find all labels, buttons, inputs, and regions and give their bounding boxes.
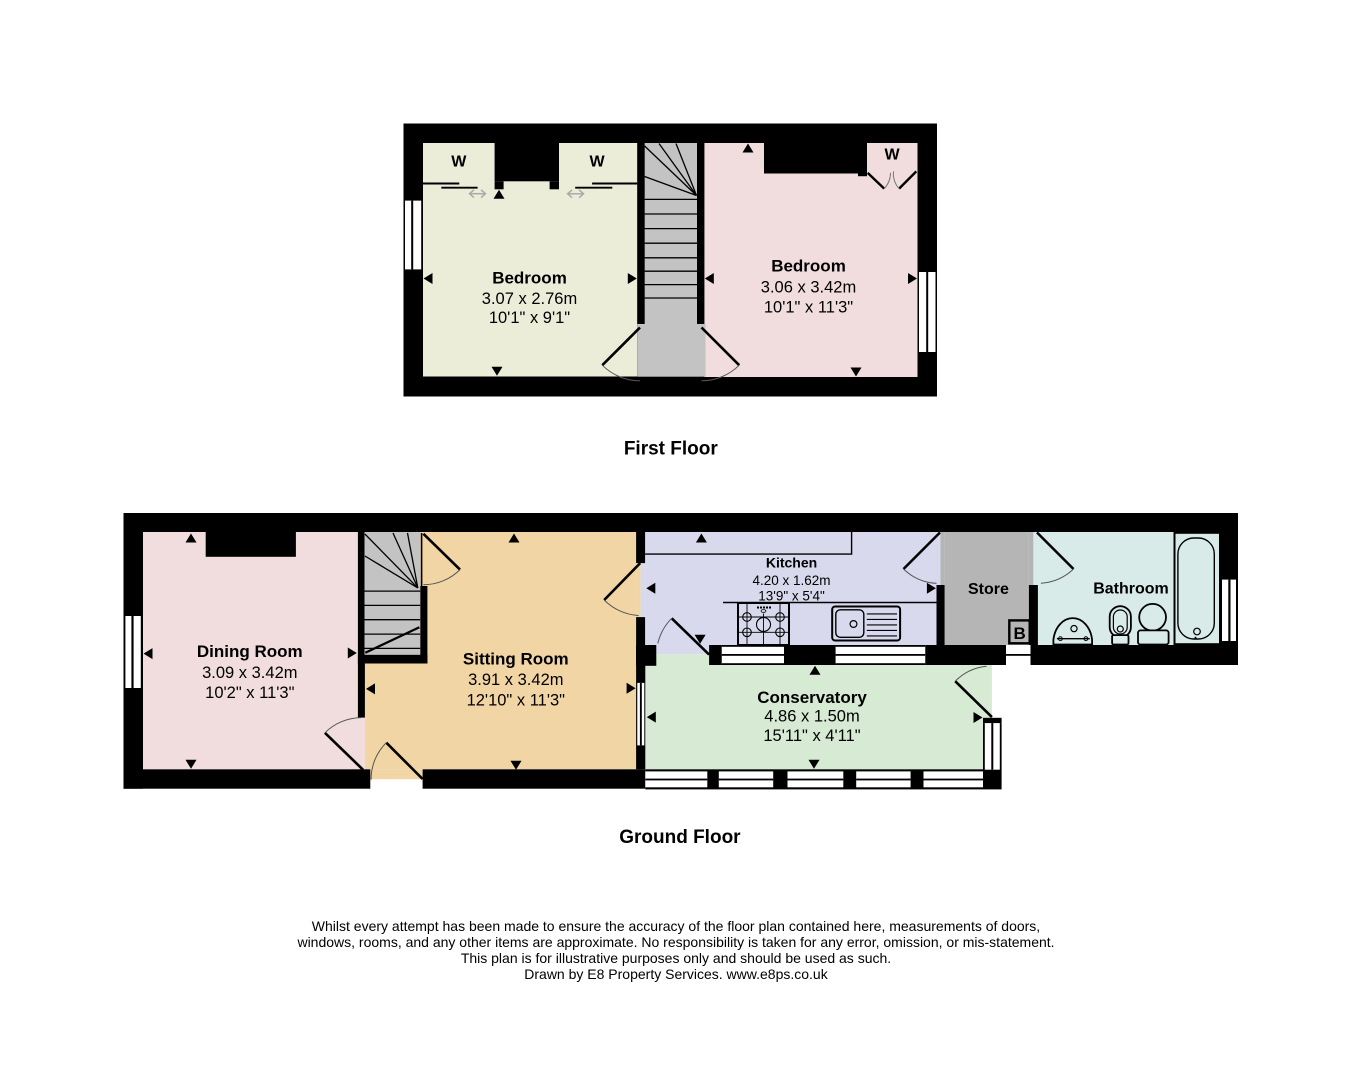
svg-text:W: W	[884, 147, 900, 164]
svg-text:3.09 x 3.42m: 3.09 x 3.42m	[202, 664, 297, 682]
svg-text:10'1" x 11'3": 10'1" x 11'3"	[764, 299, 853, 317]
svg-text:Whilst every attempt has been: Whilst every attempt has been made to en…	[312, 918, 1040, 934]
svg-text:This plan is for illustrative: This plan is for illustrative purposes o…	[461, 950, 891, 966]
svg-text:4.86 x 1.50m: 4.86 x 1.50m	[764, 707, 859, 725]
svg-text:Bedroom: Bedroom	[492, 269, 567, 288]
svg-text:Store: Store	[968, 581, 1009, 598]
svg-text:B: B	[1014, 624, 1026, 643]
svg-text:Ground Floor: Ground Floor	[619, 827, 741, 848]
svg-text:Bedroom: Bedroom	[771, 257, 846, 276]
svg-text:3.07 x 2.76m: 3.07 x 2.76m	[482, 290, 577, 308]
svg-text:Drawn by E8 Property Services.: Drawn by E8 Property Services. www.e8ps.…	[524, 966, 828, 982]
svg-text:Kitchen: Kitchen	[766, 555, 817, 571]
svg-text:W: W	[451, 153, 467, 170]
svg-text:4.20 x 1.62m: 4.20 x 1.62m	[752, 573, 830, 588]
svg-text:Sitting Room: Sitting Room	[463, 649, 569, 668]
svg-text:windows, rooms, and any other: windows, rooms, and any other items are …	[296, 934, 1054, 950]
svg-text:3.06 x 3.42m: 3.06 x 3.42m	[761, 279, 856, 297]
svg-text:Dining Room: Dining Room	[197, 642, 303, 661]
svg-text:10'2" x 11'3": 10'2" x 11'3"	[205, 684, 294, 702]
svg-text:13'9" x 5'4": 13'9" x 5'4"	[758, 589, 825, 604]
svg-text:W: W	[589, 153, 605, 170]
svg-text:10'1" x 9'1": 10'1" x 9'1"	[489, 309, 570, 327]
svg-text:Bathroom: Bathroom	[1093, 581, 1169, 598]
svg-text:First Floor: First Floor	[624, 439, 719, 460]
svg-text:Conservatory: Conservatory	[757, 688, 867, 707]
svg-text:3.91 x 3.42m: 3.91 x 3.42m	[468, 671, 563, 689]
svg-text:15'11" x 4'11": 15'11" x 4'11"	[763, 727, 860, 745]
svg-text:12'10" x 11'3": 12'10" x 11'3"	[467, 691, 566, 709]
